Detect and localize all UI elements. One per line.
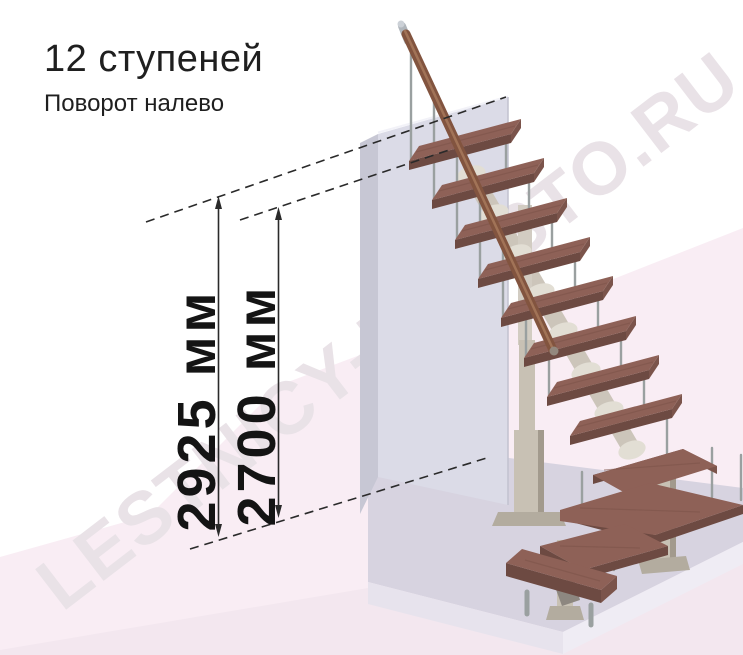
dimension-label-overall: 2925 мм (167, 288, 227, 531)
arrowhead-up (275, 207, 282, 220)
front-post-base (546, 606, 584, 620)
wall-side-face (360, 134, 378, 514)
arrowhead-up (215, 196, 222, 209)
main-column-base (492, 512, 566, 526)
title-block: 12 ступеней Поворот налево (44, 38, 263, 118)
page-subtitle: Поворот налево (44, 90, 263, 118)
staircase-diagram-page: LESTNICY-PROSTO.RU (0, 0, 743, 655)
main-column-shade (538, 430, 544, 514)
handrail-end-cap (550, 347, 559, 356)
page-title: 12 ступеней (44, 38, 263, 82)
dimension-label-flight: 2700 мм (227, 283, 287, 526)
handrail-tip-cap (398, 21, 405, 28)
